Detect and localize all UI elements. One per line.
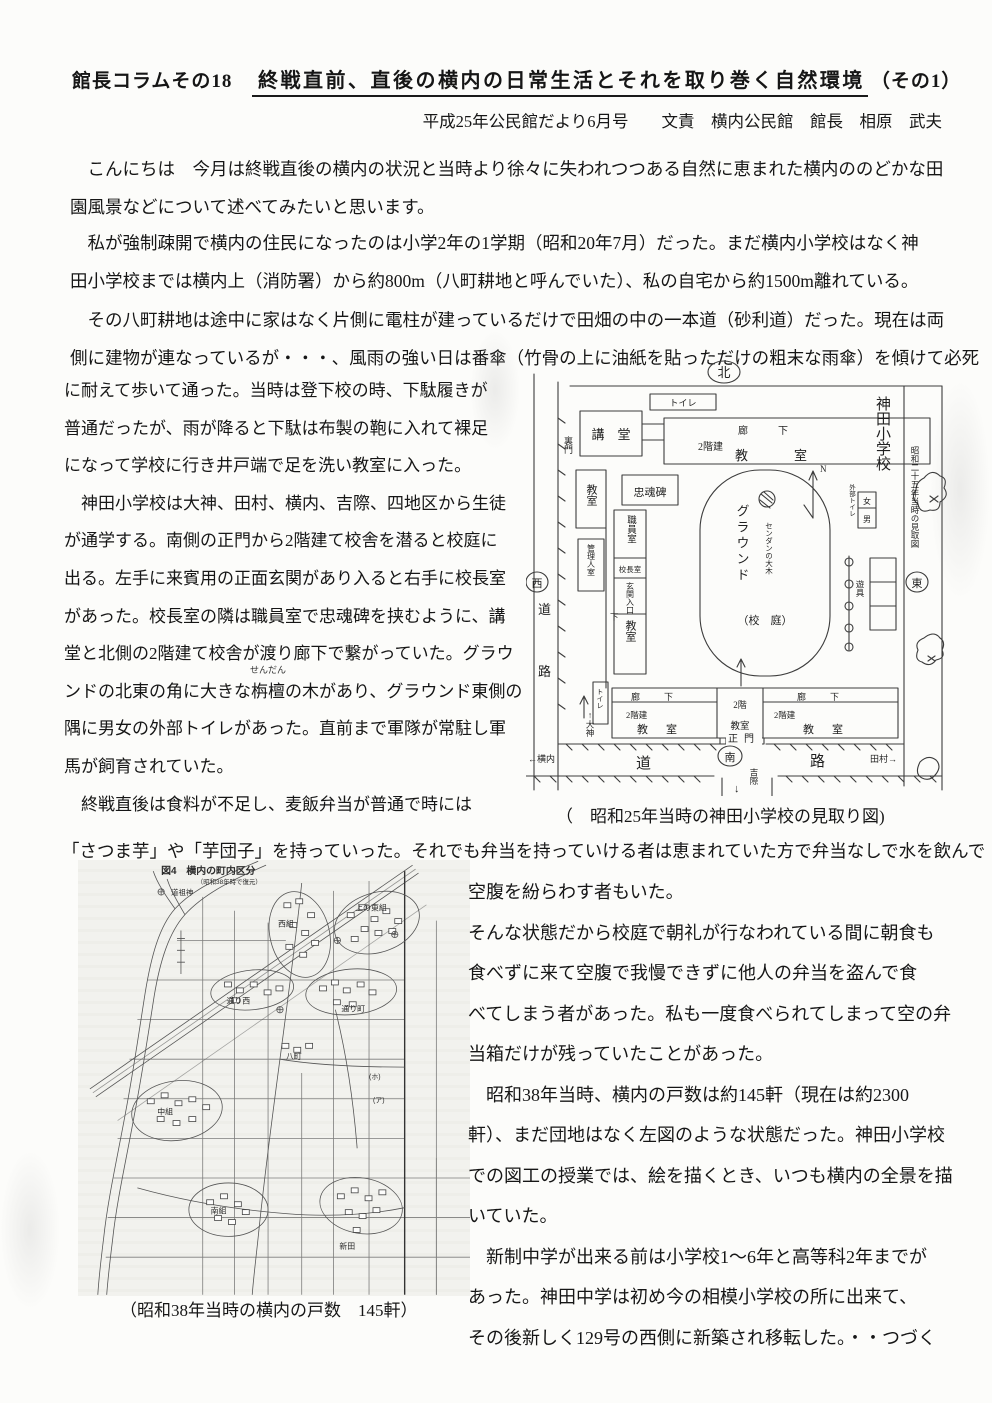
north-arrow-icon	[804, 471, 817, 518]
area-label: 新田	[339, 1241, 355, 1251]
big-tree-label: センダンの大木	[764, 522, 773, 576]
corridor-down-label: 下	[610, 612, 619, 622]
right-text-column: 空腹を紛らわす者もいた。 そんな状態だから校庭で朝礼が行なわれている間に朝食も …	[468, 872, 960, 1358]
text-line: 出る。左手に来賓用の正面玄関があり入ると右手に校長室	[64, 560, 516, 598]
text-line: 園風景などについて述べてみたいと思います。	[70, 188, 943, 226]
text-line: に耐えて歩いて通った。当時は登下校の時、下駄履きが	[64, 372, 516, 410]
map-mark: (ホ)	[369, 1073, 381, 1081]
entrance-label: 玄関入口	[626, 581, 635, 614]
mid-room-label: 教室	[730, 720, 749, 732]
ruby-word: 栴檀せんだん	[251, 673, 285, 711]
text-line: 昭和38年当時、横内の戸数は約145軒（現在は約2300	[468, 1075, 960, 1116]
ruby-post: の木があり、グラウンド東側の	[285, 682, 522, 701]
staff-room-label: 職員室	[625, 515, 637, 544]
two-story-label: 2階建	[698, 440, 723, 453]
legend-symbol-icon	[158, 889, 164, 895]
corridor-label: 廊下	[631, 691, 697, 702]
road-label: 道	[538, 602, 551, 617]
compass-icon	[177, 931, 185, 975]
text-line-with-ruby: ンドの北東の角に大きな栴檀せんだんの木があり、グラウンド東側の	[64, 673, 516, 711]
text-line: 当箱だけが残っていたことがあった。	[468, 1034, 960, 1075]
town-district-map: 図4 横内の町内区分 （昭和38年時で復元） 道祖神 上の東組 西組 通り西 通…	[78, 860, 470, 1296]
text-line: 普通だったが、雨が降ると下駄は布製の鞄に入れて裸足	[64, 410, 516, 448]
figure-title: 図4 横内の町内区分	[161, 864, 255, 877]
principal-room-label: 校長室	[619, 564, 642, 574]
corridor-label: 廊下	[797, 691, 863, 702]
compass-south-label: 南	[725, 751, 736, 764]
scan-smudge	[930, 380, 990, 600]
memorial-label: 忠魂碑	[634, 486, 667, 499]
area-label: 南組	[211, 1206, 227, 1216]
main-gate-label: 正門	[728, 733, 760, 745]
school-layout-map: 北 西 東 南 道 路 裏門 ↑大神 トイレ 講 堂 廊下 2階建 教室 教室 …	[526, 358, 958, 796]
compass-west-label: 西	[532, 578, 543, 590]
text-line: があった。校長室の隣は職員室で忠魂碑を挟むように、講	[64, 598, 516, 636]
text-line: 田小学校までは横内上（消防署）から約800m（八町耕地と呼んでいた）、私の自宅か…	[70, 262, 919, 300]
corridor-label: 廊下	[738, 424, 818, 437]
down-arrow-label: ↓	[734, 783, 740, 795]
to-yokouchi-label: ←横内	[528, 753, 555, 764]
to-okami-label: ↑大神	[585, 710, 595, 738]
text-line: 馬が飼育されていた。	[64, 748, 516, 786]
area-label: 通り町	[341, 1004, 365, 1014]
school-map-caption: （ 昭和25年当時の神田小学校の見取り図)	[556, 802, 885, 827]
field-grid	[106, 881, 470, 1295]
compass-east-label: 東	[912, 577, 923, 590]
text-line: 私が強制疎開で横内の住民になったのは小学2年の1学期（昭和20年7月）だった。ま…	[70, 224, 919, 262]
classroom-label: 教室	[585, 484, 598, 506]
two-story-label: 2階建	[774, 710, 796, 720]
school-name-label: 神田小学校	[874, 396, 891, 471]
text-line: こんにちは 今月は終戦直後の横内の状況と当時より徐々に失われつつある自然に恵まれ…	[70, 150, 943, 188]
text-line: そんな状態だから校庭で朝礼が行なわれている間に朝食も	[468, 913, 960, 954]
male-label: 男	[863, 515, 871, 524]
classroom-label: 教室	[735, 448, 853, 463]
classroom-label: 教室	[637, 722, 695, 736]
ruby-furigana: せんだん	[250, 666, 286, 675]
north-n-label: N	[820, 464, 827, 474]
text-line: べてしまう者があった。私も一度食べられてしまって空の弁	[468, 994, 960, 1035]
road-label: 路	[538, 664, 551, 679]
byline: 平成25年公民館だより6月号 文責 横内公民館 館長 相原 武夫	[423, 108, 942, 132]
area-label: 上の東組	[355, 903, 387, 913]
text-line: いていた。	[468, 1196, 960, 1237]
map-mark: (ア)	[373, 1097, 385, 1105]
text-line: での図工の授業では、絵を描くとき、いつも横内の全景を描	[468, 1156, 960, 1197]
text-line: 食べずに来て空腹で我慢できずに他人の弁当を盗んで食	[468, 953, 960, 994]
text-line: が通学する。南側の正門から2階建て校舎を潜ると校庭に	[64, 522, 516, 560]
caretaker-room-label: 管理人室	[587, 543, 596, 576]
village-roads	[137, 883, 404, 1295]
mid-room-floor-label: 2階	[733, 700, 747, 710]
left-text-column: に耐えて歩いて通った。当時は登下校の時、下駄履きが 普通だったが、雨が降ると下駄…	[64, 372, 516, 823]
page-title: 終戦直前、直後の横内の日常生活とそれを取り巻く自然環境（その1）	[252, 64, 961, 97]
ruby-pre: ンドの北東の角に大きな	[64, 682, 251, 701]
compass-north-label: 北	[717, 365, 730, 380]
school-name-sub-label: 昭和二十五年当時の見取図	[910, 446, 920, 549]
text-line: 神田小学校は大神、田村、横内、吉際、四地区から生徒	[64, 485, 516, 523]
area-label: 通り西	[226, 996, 250, 1006]
scan-smudge	[470, 330, 520, 450]
column-series-label: 館長コラムその18	[72, 66, 232, 93]
page-title-underlined: 終戦直前、直後の横内の日常生活とそれを取り巻く自然環境	[252, 64, 868, 97]
toilet-label: トイレ	[669, 398, 696, 408]
scan-smudge	[0, 1150, 60, 1310]
ruby-base: 栴檀	[251, 682, 285, 701]
play-equipment-label: 遊具	[855, 579, 865, 598]
text-line: 隅に男女の外部トイレがあった。直前まで軍隊が常駐し軍	[64, 710, 516, 748]
text-line: 終戦直後は食料が不足し、麦飯弁当が普通で時には	[64, 786, 516, 824]
text-line: その八町耕地は途中に家はなく片側に電柱が建っているだけで田畑の中の一本道（砂利道…	[70, 301, 979, 339]
town-map-panel: 図4 横内の町内区分 （昭和38年時で復元） 道祖神 上の東組 西組 通り西 通…	[78, 860, 470, 1296]
paragraph-2: 私が強制疎開で横内の住民になったのは小学2年の1学期（昭和20年7月）だった。ま…	[70, 224, 919, 300]
text-line: その後新しく129号の西側に新築され移転した。・・つづく	[468, 1318, 960, 1359]
paragraph-1: こんにちは 今月は終戦直後の横内の状況と当時より徐々に失われつつある自然に恵まれ…	[70, 150, 943, 226]
toilet-label: トイレ	[596, 688, 604, 709]
auditorium-label: 講 堂	[591, 427, 630, 442]
text-line: 堂と北側の2階建て校舎が渡り廊下で繋がっていた。グラウ	[64, 635, 516, 673]
ground-sub-label: （校 庭）	[738, 613, 793, 627]
classroom-label: 教室	[803, 722, 861, 736]
to-tamura-label: 田村→	[870, 753, 897, 764]
area-label: 八町	[286, 1052, 302, 1061]
classroom-label: 教室	[624, 620, 637, 642]
text-line: 軒）、まだ団地はなく左図のような状態だった。神田小学校	[468, 1115, 960, 1156]
text-line: 空腹を紛らわす者もいた。	[468, 872, 960, 913]
text-line: になって学校に行き井戸端で足を洗い教室に入った。	[64, 447, 516, 485]
road-label: 道	[636, 755, 651, 772]
town-map-caption: （昭和38年当時の横内の戸数 145軒）	[120, 1296, 418, 1321]
ground-label: グラウンド	[735, 504, 750, 584]
text-line: あった。神田中学は初め今の相模小学校の所に出来て、	[468, 1277, 960, 1318]
to-kissai-label: 吉際	[749, 768, 759, 786]
legend-label: 道祖神	[171, 887, 193, 897]
scanned-newsletter-page: 館長コラムその18 終戦直前、直後の横内の日常生活とそれを取り巻く自然環境（その…	[0, 0, 992, 1403]
female-label: 女	[863, 496, 871, 506]
outer-toilet-label: 外部トイレ	[848, 483, 856, 517]
two-story-label: 2階建	[626, 710, 648, 720]
page-title-suffix: （その1）	[871, 71, 962, 92]
road-label: 路	[810, 753, 825, 770]
area-label: 中組	[157, 1107, 173, 1117]
figure-subtitle: （昭和38年時で復元）	[197, 877, 262, 886]
back-gate-label: 裏門	[563, 435, 573, 455]
text-line: 新制中学が出来る前は小学校1～6年と高等科2年までが	[468, 1237, 960, 1278]
area-label: 西組	[278, 919, 294, 929]
hamlet-outlines	[128, 881, 428, 1240]
